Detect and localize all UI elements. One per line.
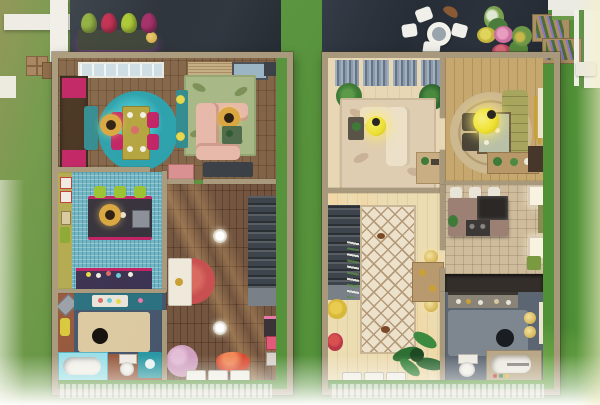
bistro-chair[interactable] xyxy=(401,23,418,38)
front-porch-railing-ghost xyxy=(58,384,272,398)
egg-chair-red[interactable] xyxy=(101,13,117,33)
planter-pink-flowers[interactable] xyxy=(494,26,513,43)
game-viewport xyxy=(0,0,600,405)
planter-mixed[interactable] xyxy=(512,26,532,46)
egg-chair-lime[interactable] xyxy=(121,13,137,33)
planter-lamp[interactable] xyxy=(146,32,157,43)
egg-chair-magenta[interactable] xyxy=(141,13,157,33)
egg-chair-green[interactable] xyxy=(81,13,97,33)
left-unit-walls xyxy=(52,52,293,395)
porch-beam-top-right xyxy=(548,0,600,10)
neighbor-porch-post xyxy=(0,76,16,98)
left-edge-fade xyxy=(0,180,24,405)
front-porch-railing-ghost xyxy=(330,384,544,398)
right-unit-walls xyxy=(322,52,560,395)
garden-bench[interactable] xyxy=(576,62,596,76)
